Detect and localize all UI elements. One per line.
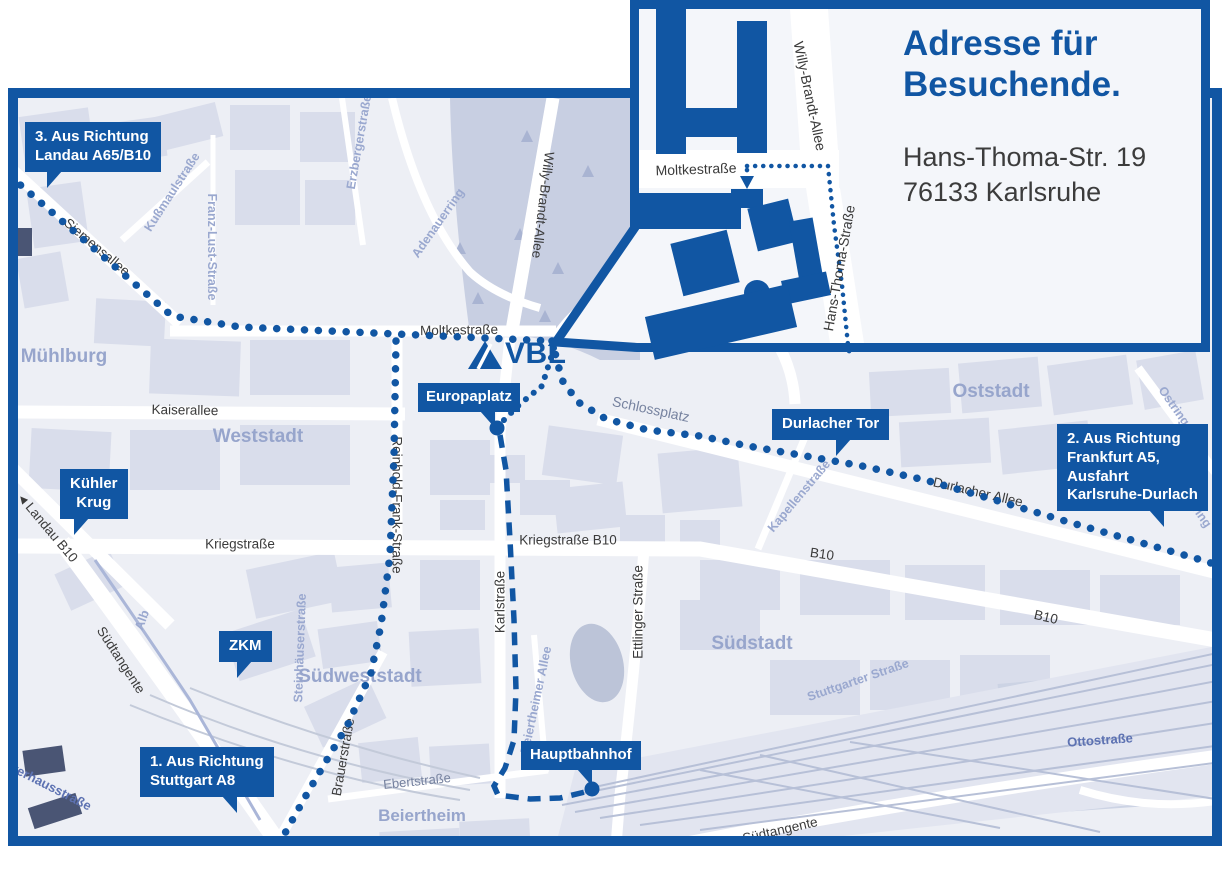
street-label-kaiserallee: Kaiserallee — [151, 402, 218, 418]
street-label-durlacher-allee: Durlacher Allee — [932, 474, 1025, 509]
street-label-franz-lust-strasse: Franz-Lust-Straße — [205, 194, 219, 301]
callout-route-2-frankfurt: 2. Aus Richtung Frankfurt A5, Ausfahrt K… — [1057, 424, 1208, 511]
district-label-suedweststadt: Südweststadt — [298, 666, 422, 688]
district-label-beiertheim: Beiertheim — [378, 806, 466, 826]
callout-route-3-landau: 3. Aus Richtung Landau A65/B10 — [25, 122, 161, 172]
callout-hauptbahnhof: Hauptbahnhof — [521, 741, 641, 770]
callout-route-1-stuttgart: 1. Aus Richtung Stuttgart A8 — [140, 747, 274, 797]
street-label-suedtangente-west: Südtangente — [94, 624, 148, 696]
district-label-weststadt: Weststadt — [213, 426, 303, 448]
street-label-schlossplatz: Schlossplatz — [611, 393, 691, 425]
street-label-karlstrasse: Karlstraße — [493, 571, 508, 633]
street-label-ettlinger-strasse: Ettlinger Straße — [631, 565, 646, 659]
street-label-ottostrasse: Ottostraße — [1067, 730, 1134, 750]
vbl-logo: VBL — [468, 340, 567, 369]
street-label-alb: Alb — [132, 608, 152, 632]
street-label-willy-brandt-allee: Willy-Brandt-Allee — [529, 151, 557, 259]
callout-kuehler-krug: Kühler Krug — [60, 469, 128, 519]
street-label-pulverhausstrasse: Pulverhausstraße — [8, 751, 94, 814]
street-label-brauerstrasse: Brauerstraße — [329, 717, 357, 797]
inset-street-label-moltkestrasse: Moltkestraße — [655, 160, 736, 179]
street-label-kapellenstrasse: Kapellenstraße — [765, 457, 833, 535]
street-label-stuttgarter-strasse: Stuttgarter Straße — [805, 656, 910, 704]
street-label-adenauerring: Adenauerring — [409, 186, 467, 261]
callout-zkm: ZKM — [219, 631, 272, 662]
street-label-beiertheimer-allee: Beiertheimer Allee — [518, 645, 554, 755]
street-label-b10-west: B10 — [809, 545, 835, 563]
street-label-reinhold-frank-strasse: Reinhold-Frank-Straße — [390, 436, 405, 573]
street-label-erzbergerstrasse: Erzbergerstraße — [344, 94, 374, 191]
street-label-ostring-nord: Ostring — [1156, 384, 1193, 428]
street-label-moltkestrasse: Moltkestraße — [420, 322, 498, 338]
street-label-siemensallee: Siemensallee — [61, 215, 133, 279]
route-from-landau — [10, 176, 552, 341]
callout-durlacher-tor: Durlacher Tor — [772, 409, 889, 440]
street-label-ebertstrasse: Ebertstraße — [382, 770, 451, 792]
street-label-kriegstrasse: Kriegstraße — [205, 537, 275, 552]
inset-title: Adresse für Besuchende. — [903, 24, 1213, 106]
street-label-suedtangente-ost: Südtangente — [741, 814, 819, 846]
vbl-logo-text: VBL — [505, 340, 567, 369]
inset-address: Hans-Thoma-Str. 19 76133 Karlsruhe — [903, 140, 1146, 210]
district-label-suedstadt: Südstadt — [711, 633, 792, 655]
district-label-muehlburg: Mühlburg — [21, 346, 108, 368]
city-map-page: Siemensallee Moltkestraße Kaiserallee Kr… — [0, 0, 1230, 874]
street-label-kriegstrasse-b10: Kriegstraße B10 — [519, 533, 617, 548]
route-from-stuttgart — [262, 341, 396, 846]
vbl-logo-triangle-icon — [468, 341, 502, 369]
street-label-b10-east: B10 — [1033, 607, 1060, 627]
callout-europaplatz: Europaplatz — [418, 383, 520, 412]
district-label-oststadt: Oststadt — [952, 381, 1029, 403]
